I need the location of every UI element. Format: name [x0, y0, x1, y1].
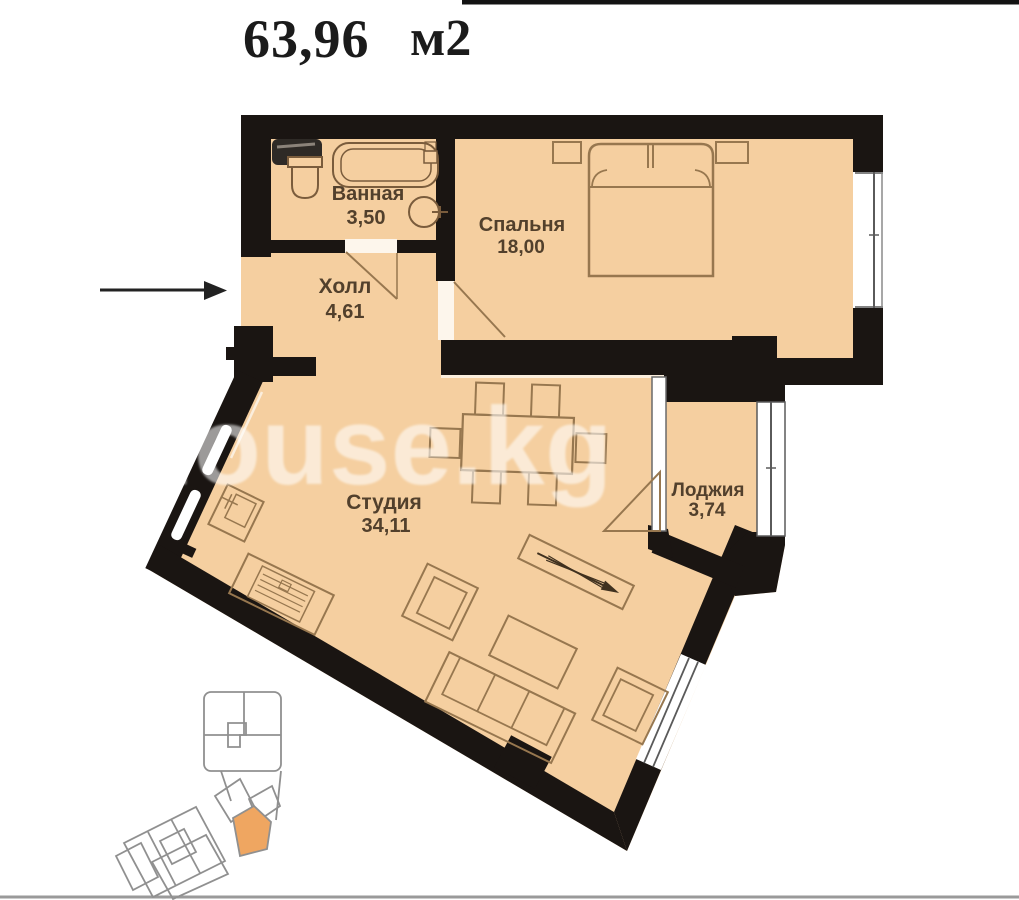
svg-text:34,11: 34,11	[362, 515, 411, 537]
svg-text:4,61: 4,61	[326, 301, 365, 323]
svg-text:18,00: 18,00	[497, 237, 545, 258]
svg-text:63,96: 63,96	[243, 9, 370, 69]
svg-text:Лоджия: Лоджия	[672, 480, 745, 501]
svg-text:м2: м2	[410, 10, 471, 67]
svg-text:3,74: 3,74	[689, 500, 726, 521]
svg-text:house.kg: house.kg	[126, 385, 613, 508]
svg-text:Ванная: Ванная	[332, 183, 405, 205]
svg-text:3,50: 3,50	[347, 207, 386, 229]
svg-text:Холл: Холл	[319, 275, 372, 298]
svg-text:Спальня: Спальня	[479, 214, 565, 236]
